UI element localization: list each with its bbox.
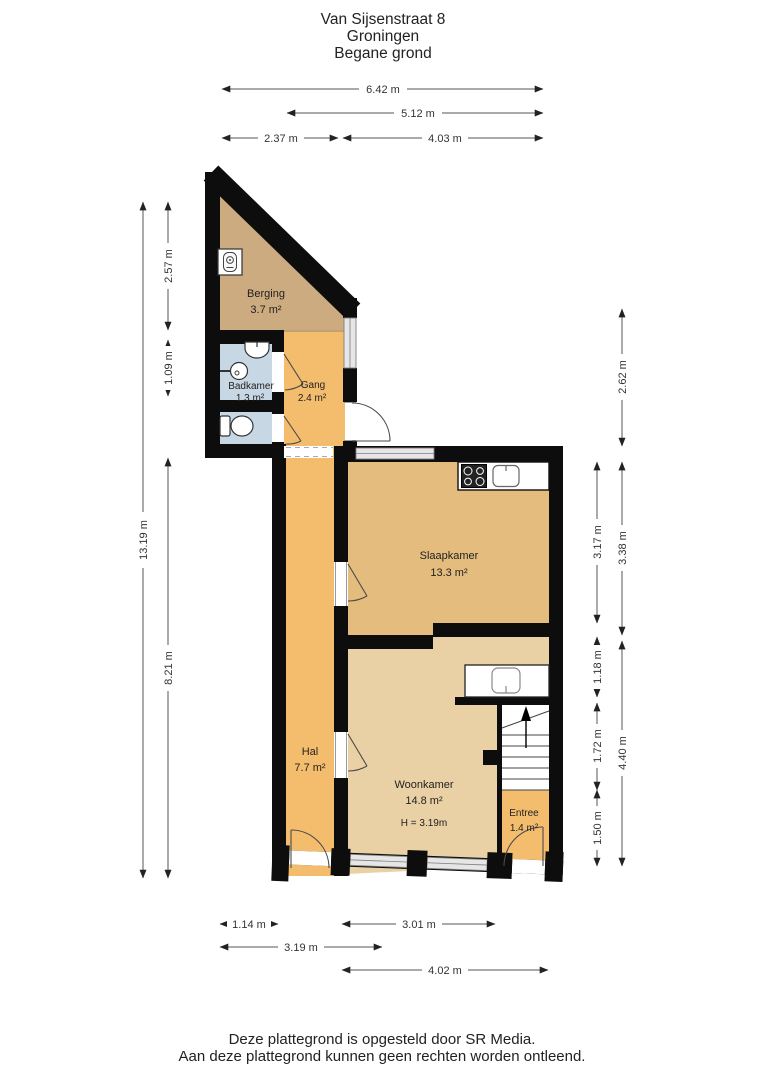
wall-stairs-left [497, 705, 502, 866]
washbasin-icon [245, 342, 269, 358]
dimension-label: 6.42 m [366, 84, 400, 96]
plan-footer: Deze plattegrond is opgesteld door SR Me… [179, 1031, 586, 1065]
wall-hal-left [272, 446, 286, 876]
room-label-berging: Berging [247, 288, 285, 300]
pillar-right-corner [544, 851, 563, 882]
dimension-label: 4.03 m [428, 133, 462, 145]
sink-icon [492, 668, 520, 693]
room-label-entree: Entree [509, 808, 539, 819]
dimension-label: 4.02 m [428, 965, 462, 977]
footer-credit: Deze plattegrond is opgesteld door SR Me… [229, 1031, 536, 1048]
room-area-berging: 3.7 m² [250, 304, 282, 316]
room-height-woonkamer: H = 3.19m [401, 818, 447, 829]
dimension-label: 1.18 m [592, 650, 604, 684]
floorplan-page: Van Sijsenstraat 8 Groningen Begane gron… [0, 0, 764, 1080]
wall-upper-left [205, 172, 220, 458]
dimension-label: 1.14 m [232, 919, 266, 931]
wall-right-outer [549, 446, 563, 870]
threshold-gang-hal [284, 446, 333, 458]
wall-gang-right-top [343, 298, 357, 318]
dimension-label: 3.17 m [592, 525, 604, 559]
dimension-label: 1.72 m [592, 729, 604, 763]
room-label-gang: Gang [301, 380, 325, 391]
dimension-label: 3.19 m [284, 942, 318, 954]
room-area-entree: 1.4 m² [510, 823, 539, 834]
room-label-slaapkamer: Slaapkamer [420, 550, 479, 562]
title-floor: Begane grond [334, 45, 431, 62]
dimension-label: 4.40 m [617, 736, 629, 770]
wall-divider-left [334, 635, 433, 649]
dimension-label: 1.50 m [592, 811, 604, 845]
stove-icon [462, 465, 487, 488]
opening-hal-slaapkamer [334, 562, 348, 606]
dimension-label: 1.09 m [163, 351, 175, 385]
kitchen-counter [458, 462, 549, 490]
room-label-woonkamer: Woonkamer [394, 779, 453, 791]
dimension-label: 3.38 m [617, 531, 629, 565]
dimension-label: 13.19 m [138, 520, 150, 560]
dimension-label: 8.21 m [163, 651, 175, 685]
wall-hal-right [334, 446, 348, 876]
pillar-left-corner [271, 845, 289, 882]
opening-hal-woonkamer [334, 732, 348, 778]
dim-bottom-114: 1.14 m [220, 917, 278, 931]
room-area-hal: 7.7 m² [294, 762, 326, 774]
opening-wc [272, 414, 284, 442]
dimension-label: 3.01 m [402, 919, 436, 931]
pillar-3 [487, 852, 513, 879]
opening-entree-door [512, 859, 546, 874]
dimension-label: 2.37 m [264, 133, 298, 145]
room-label-hal: Hal [302, 746, 319, 758]
dim-left-109: 1.09 m [161, 340, 175, 396]
pillar-1 [331, 848, 351, 876]
title-address: Van Sijsenstraat 8 [321, 11, 446, 28]
opening-hal-door [289, 850, 332, 866]
room-area-woonkamer: 14.8 m² [405, 795, 443, 807]
wall-stub [483, 750, 497, 765]
sink-icon [493, 465, 519, 487]
wall-niche-bottom [455, 697, 549, 705]
room-area-gang: 2.4 m² [298, 393, 327, 404]
opening-badkamer [272, 352, 284, 392]
floorplan-canvas: Van Sijsenstraat 8 Groningen Begane gron… [0, 0, 764, 1080]
dimension-label: 2.57 m [163, 249, 175, 283]
niche-washbasin [465, 665, 549, 697]
footer-disclaimer: Aan deze plattegrond kunnen geen rechten… [179, 1048, 586, 1065]
dimension-label: 5.12 m [401, 108, 435, 120]
pillar-2 [407, 850, 428, 877]
room-hal-floor [286, 446, 334, 876]
boiler-icon [218, 249, 242, 275]
room-area-slaapkamer: 13.3 m² [430, 567, 468, 579]
dimension-label: 2.62 m [617, 360, 629, 394]
title-city: Groningen [347, 28, 419, 45]
dim-right-118: 1.18 m [590, 637, 604, 697]
room-area-badkamer: 1.3 m² [236, 393, 265, 404]
room-label-badkamer: Badkamer [228, 381, 274, 392]
wall-gang-right-mid [343, 368, 357, 402]
wall-divider-right [433, 623, 549, 637]
toilet-icon [220, 416, 253, 436]
